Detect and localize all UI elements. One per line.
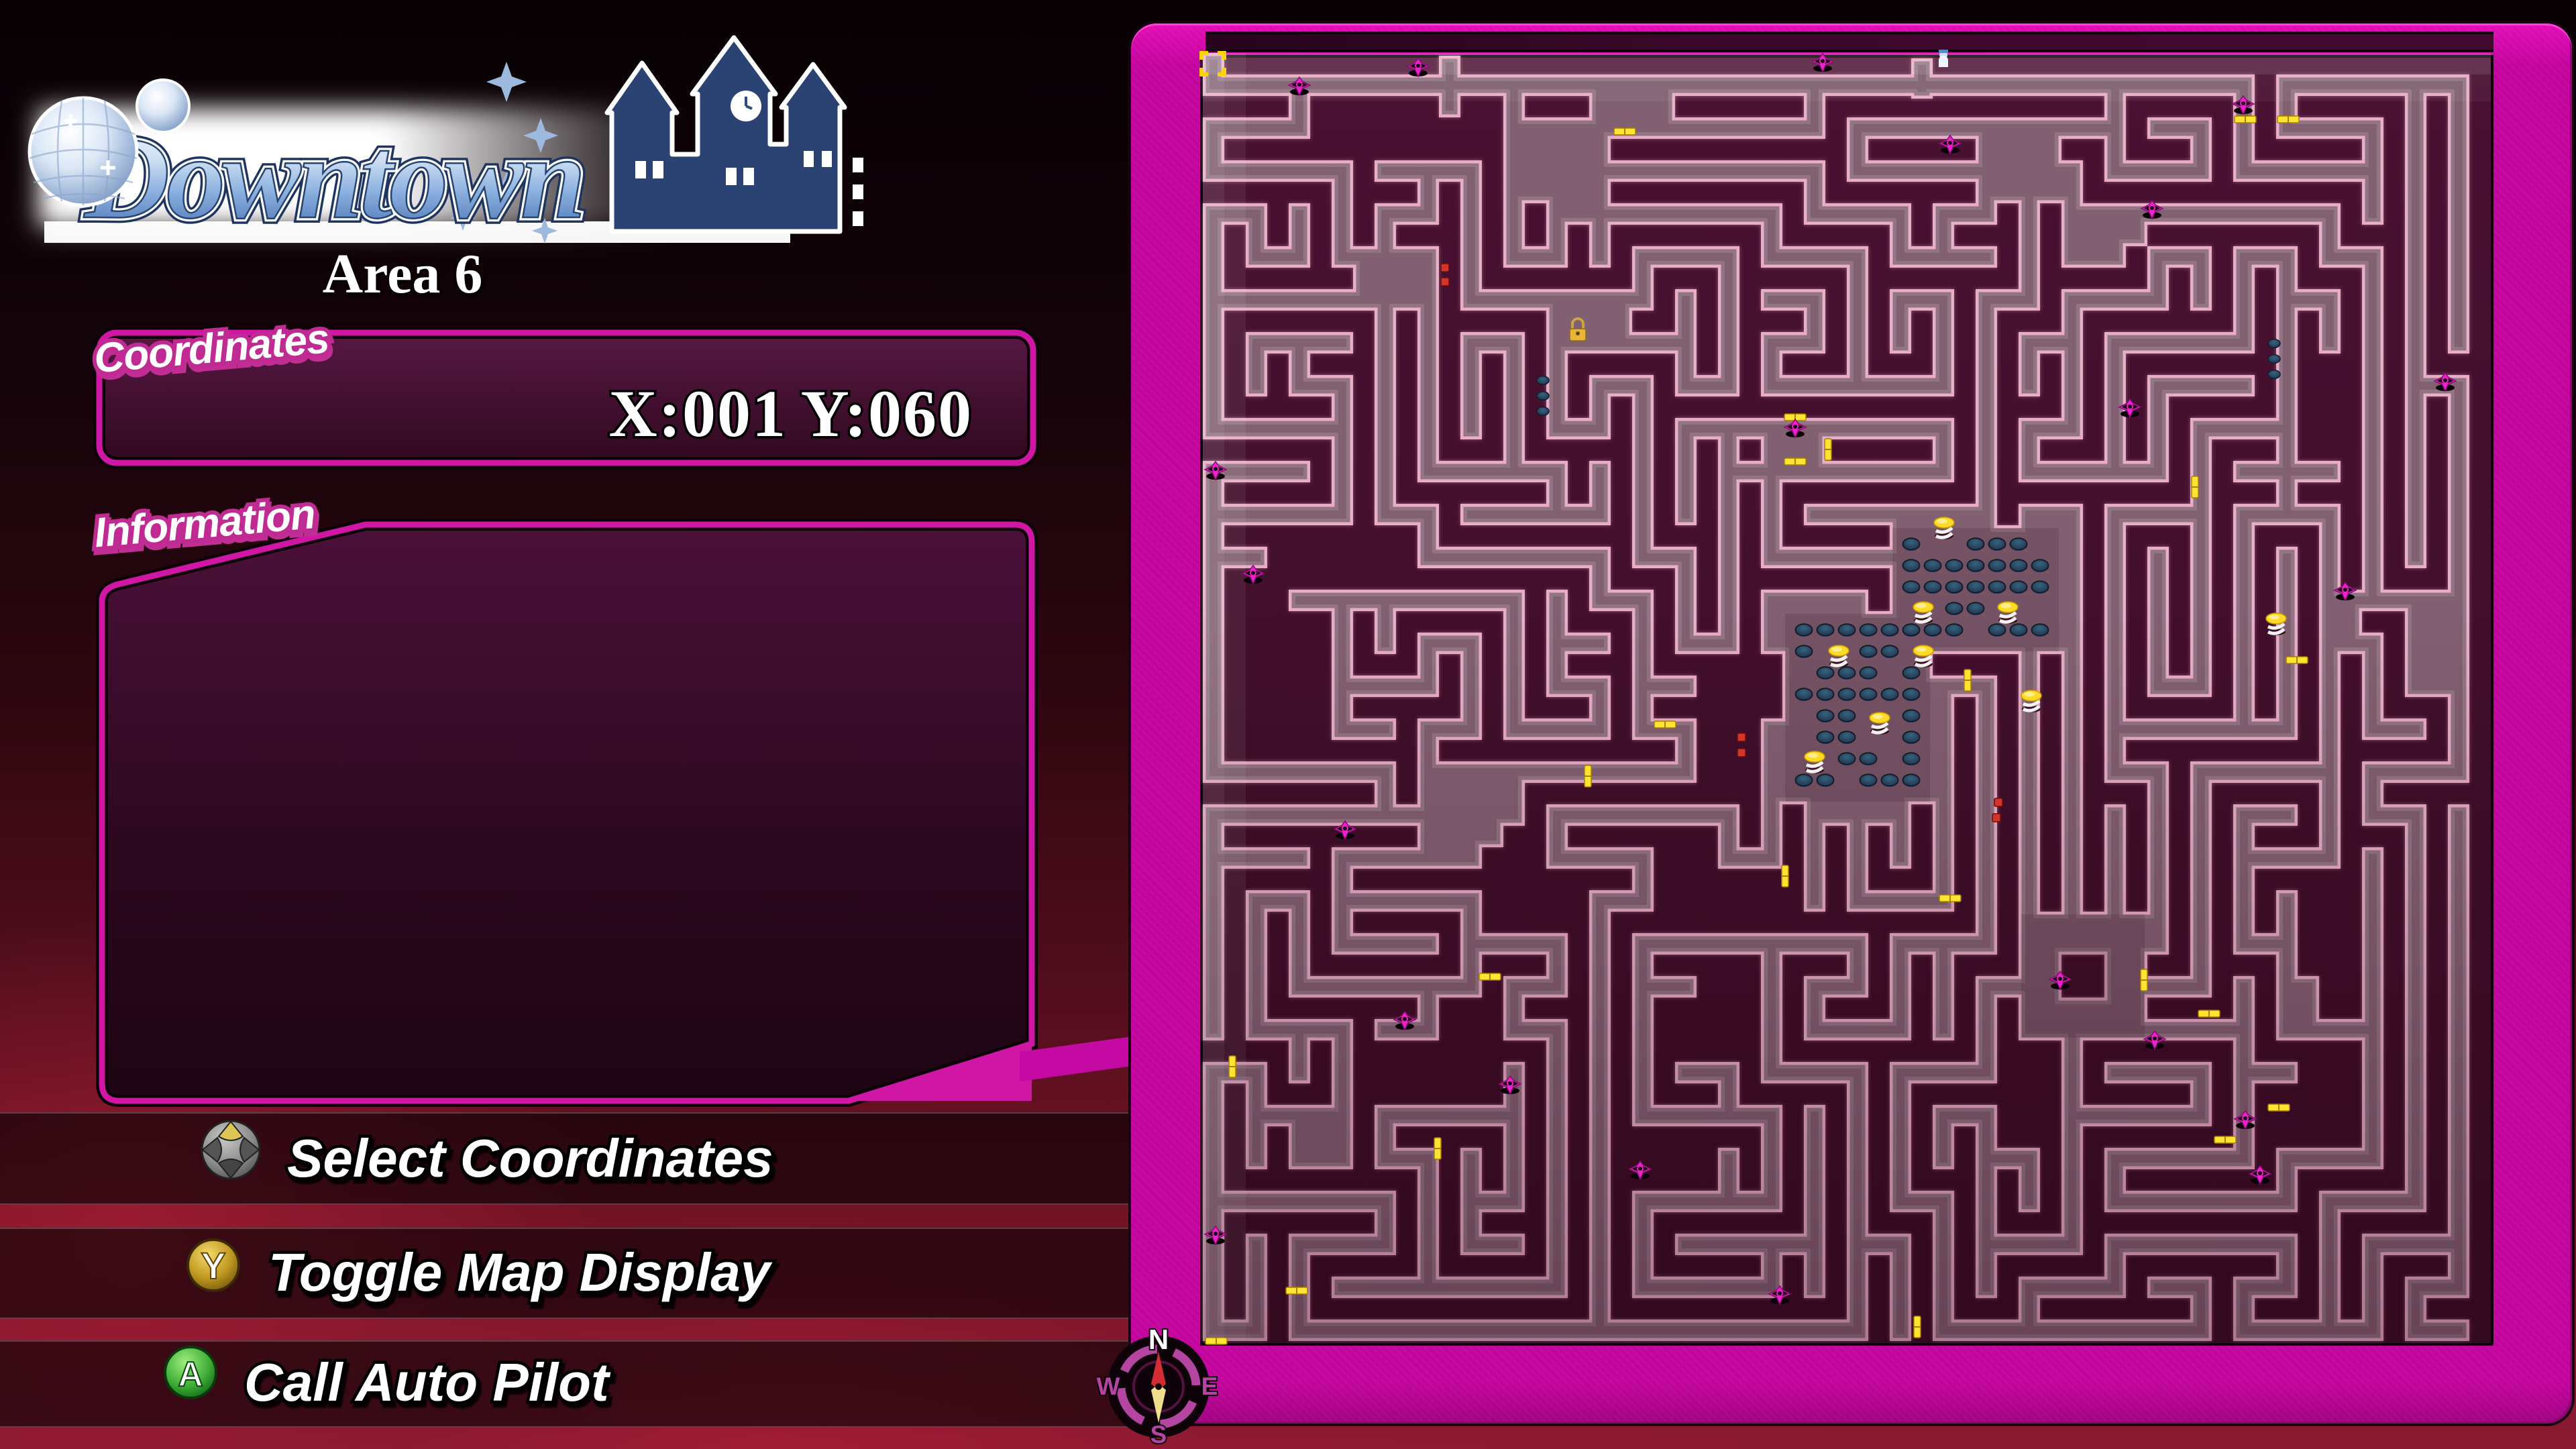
svg-text:W: W — [1097, 1373, 1120, 1400]
svg-text:N: N — [1148, 1326, 1169, 1355]
svg-text:S: S — [1150, 1421, 1167, 1448]
svg-text:E: E — [1201, 1373, 1218, 1400]
